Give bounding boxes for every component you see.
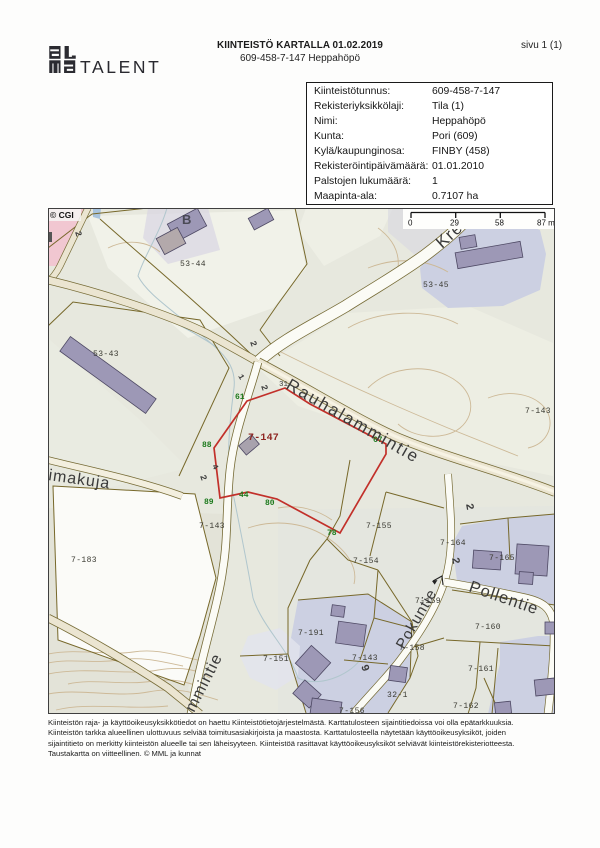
svg-text:7-151: 7-151 (263, 655, 289, 664)
svg-text:7-161: 7-161 (468, 665, 494, 674)
svg-text:B: B (182, 212, 191, 227)
svg-text:29: 29 (450, 219, 459, 228)
svg-text:53-44: 53-44 (180, 260, 206, 269)
svg-text:7-164: 7-164 (440, 539, 466, 548)
svg-text:7-165: 7-165 (489, 554, 515, 563)
svg-text:58: 58 (495, 219, 504, 228)
svg-text:7-143: 7-143 (352, 654, 378, 663)
svg-text:7-143: 7-143 (199, 522, 225, 531)
svg-text:44: 44 (239, 491, 249, 500)
svg-text:7-162: 7-162 (453, 702, 479, 711)
svg-text:80: 80 (265, 499, 275, 508)
svg-text:© CGI: © CGI (50, 210, 74, 220)
svg-text:78: 78 (327, 529, 337, 538)
svg-text:89: 89 (204, 498, 214, 507)
svg-text:7-147: 7-147 (248, 433, 279, 444)
svg-text:53-45: 53-45 (423, 281, 449, 290)
svg-text:7-143: 7-143 (525, 407, 551, 416)
svg-text:53-43: 53-43 (93, 350, 119, 359)
svg-text:7-191: 7-191 (298, 629, 324, 638)
svg-text:87 m: 87 m (537, 219, 555, 228)
svg-text:88: 88 (202, 441, 212, 450)
svg-text:7-160: 7-160 (475, 623, 501, 632)
svg-text:7-154: 7-154 (353, 557, 379, 566)
svg-text:61: 61 (235, 393, 245, 402)
svg-text:7-183: 7-183 (71, 556, 97, 565)
svg-text:0: 0 (408, 219, 413, 228)
svg-text:7-155: 7-155 (366, 522, 392, 531)
svg-text:32-1: 32-1 (387, 691, 408, 700)
svg-text:7-156: 7-156 (339, 707, 365, 714)
